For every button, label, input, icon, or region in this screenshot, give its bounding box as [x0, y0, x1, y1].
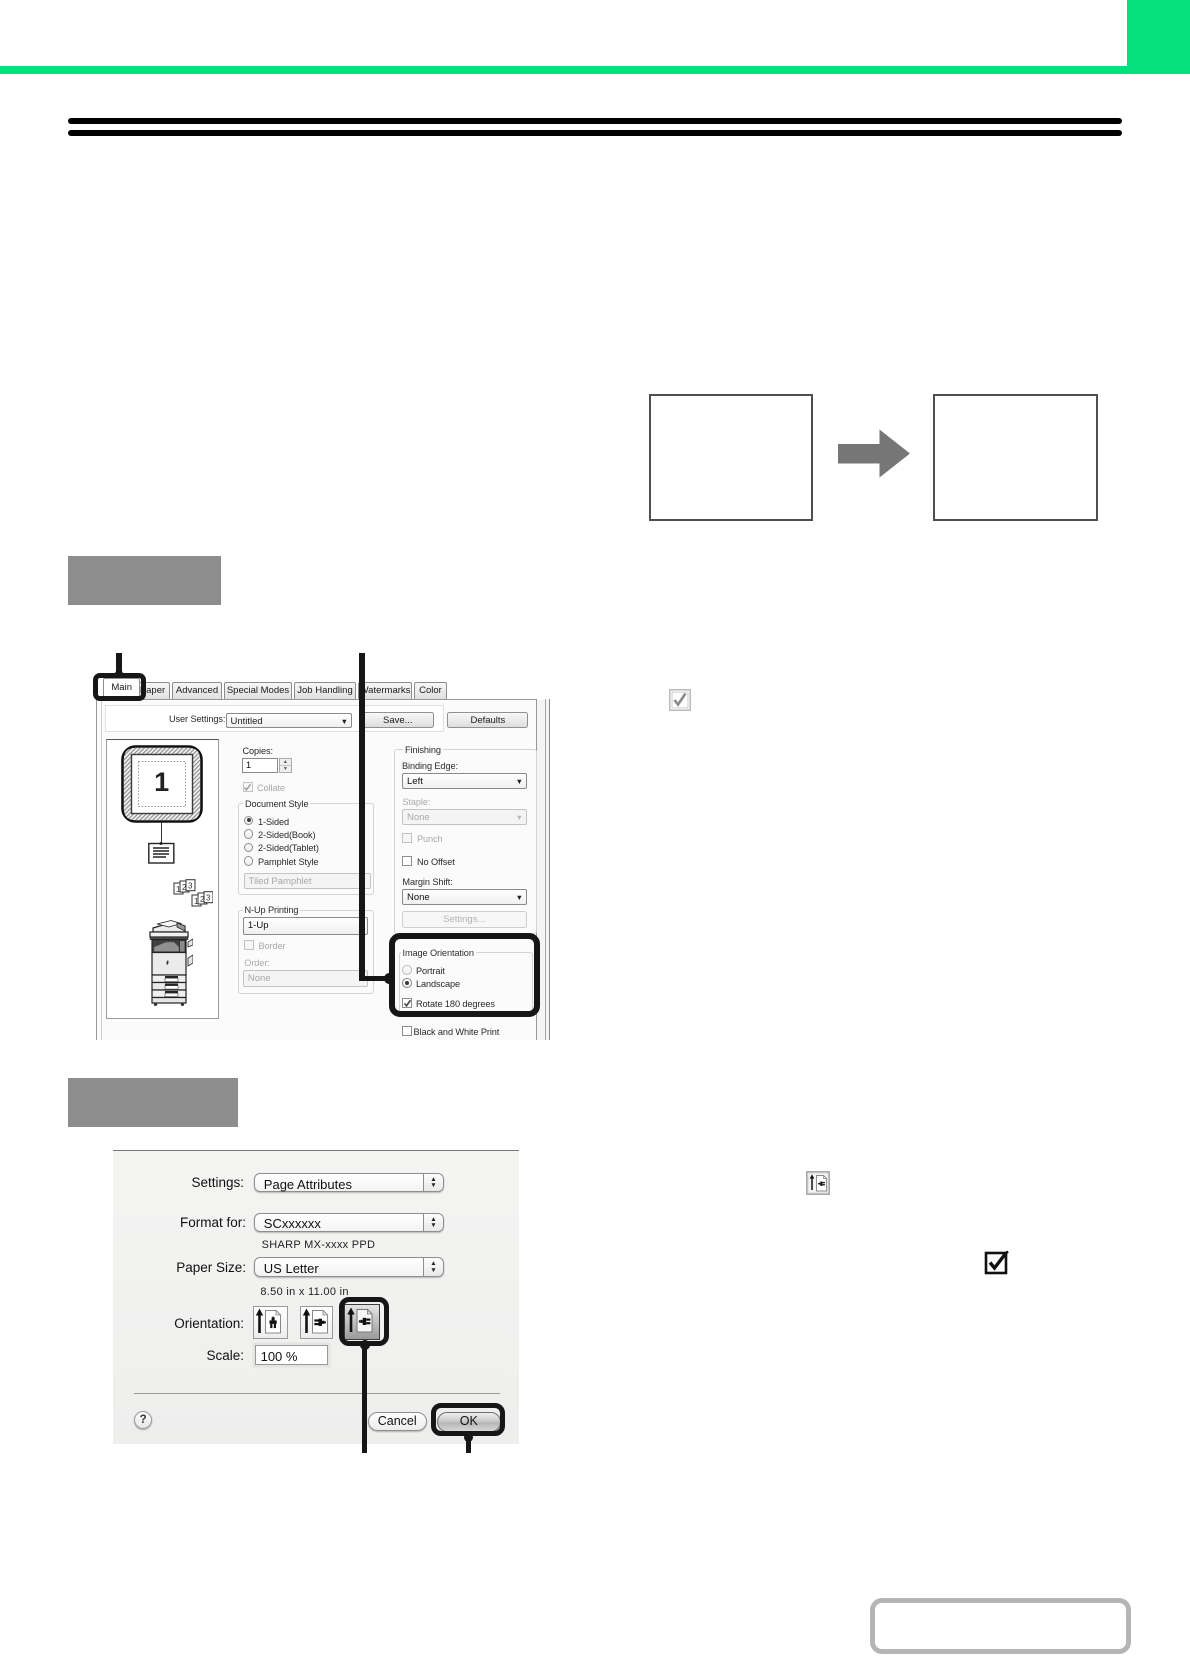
svg-text:3: 3 [188, 882, 193, 891]
svg-text:3: 3 [206, 894, 211, 903]
